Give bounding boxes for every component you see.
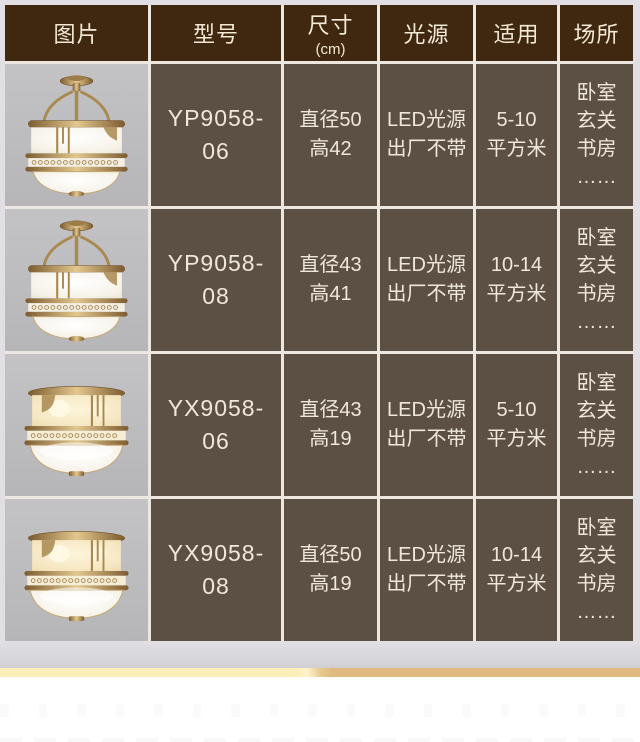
header-applicable-label: 适用 (493, 17, 539, 49)
product-image-lamp (5, 354, 148, 496)
header-image: 图片 (5, 5, 148, 61)
place-cell: 卧室 玄关 书房 …… (560, 499, 633, 641)
model-cell: YP9058- 08 (151, 209, 281, 351)
spec-table-wrap: 图片 型号 尺寸(cm) 光源 适用 场所 (0, 0, 640, 644)
header-place: 场所 (560, 5, 633, 61)
light-source-cell: LED光源 出厂不带 (380, 209, 473, 351)
size-cell: 直径50 高42 (284, 64, 377, 206)
header-light-source: 光源 (380, 5, 473, 61)
light-source-cell: LED光源 出厂不带 (380, 499, 473, 641)
size-cell: 直径43 高19 (284, 354, 377, 496)
header-place-label: 场所 (573, 17, 619, 49)
spec-table: 图片 型号 尺寸(cm) 光源 适用 场所 (5, 5, 633, 641)
header-size: 尺寸(cm) (284, 5, 377, 61)
size-cell: 直径43 高41 (284, 209, 377, 351)
place-cell: 卧室 玄关 书房 …… (560, 209, 633, 351)
light-source-cell: LED光源 出厂不带 (380, 354, 473, 496)
faint-watermark-row (0, 738, 640, 742)
product-image-lamp (5, 209, 148, 351)
header-size-unit: (cm) (316, 41, 346, 58)
applicable-area-cell: 10-14 平方米 (476, 499, 557, 641)
model-cell: YX9058- 06 (151, 354, 281, 496)
model-cell: YX9058- 08 (151, 499, 281, 641)
product-image-lamp (5, 499, 148, 641)
faint-watermark-row (0, 704, 640, 717)
place-cell: 卧室 玄关 书房 …… (560, 64, 633, 206)
section-divider-gray (0, 644, 640, 668)
header-model-label: 型号 (193, 17, 239, 49)
header-light-source-label: 光源 (403, 17, 449, 49)
bottom-white-area (0, 677, 640, 742)
applicable-area-cell: 5-10 平方米 (476, 354, 557, 496)
header-model: 型号 (151, 5, 281, 61)
applicable-area-cell: 10-14 平方米 (476, 209, 557, 351)
header-image-label: 图片 (53, 17, 99, 49)
product-image-lamp (5, 64, 148, 206)
model-cell: YP9058- 06 (151, 64, 281, 206)
header-applicable: 适用 (476, 5, 557, 61)
header-size-label: 尺寸 (307, 8, 353, 40)
light-source-cell: LED光源 出厂不带 (380, 64, 473, 206)
size-cell: 直径50 高19 (284, 499, 377, 641)
place-cell: 卧室 玄关 书房 …… (560, 354, 633, 496)
gold-accent-band (0, 668, 640, 677)
product-spec-page: 图片 型号 尺寸(cm) 光源 适用 场所 (0, 0, 640, 742)
applicable-area-cell: 5-10 平方米 (476, 64, 557, 206)
